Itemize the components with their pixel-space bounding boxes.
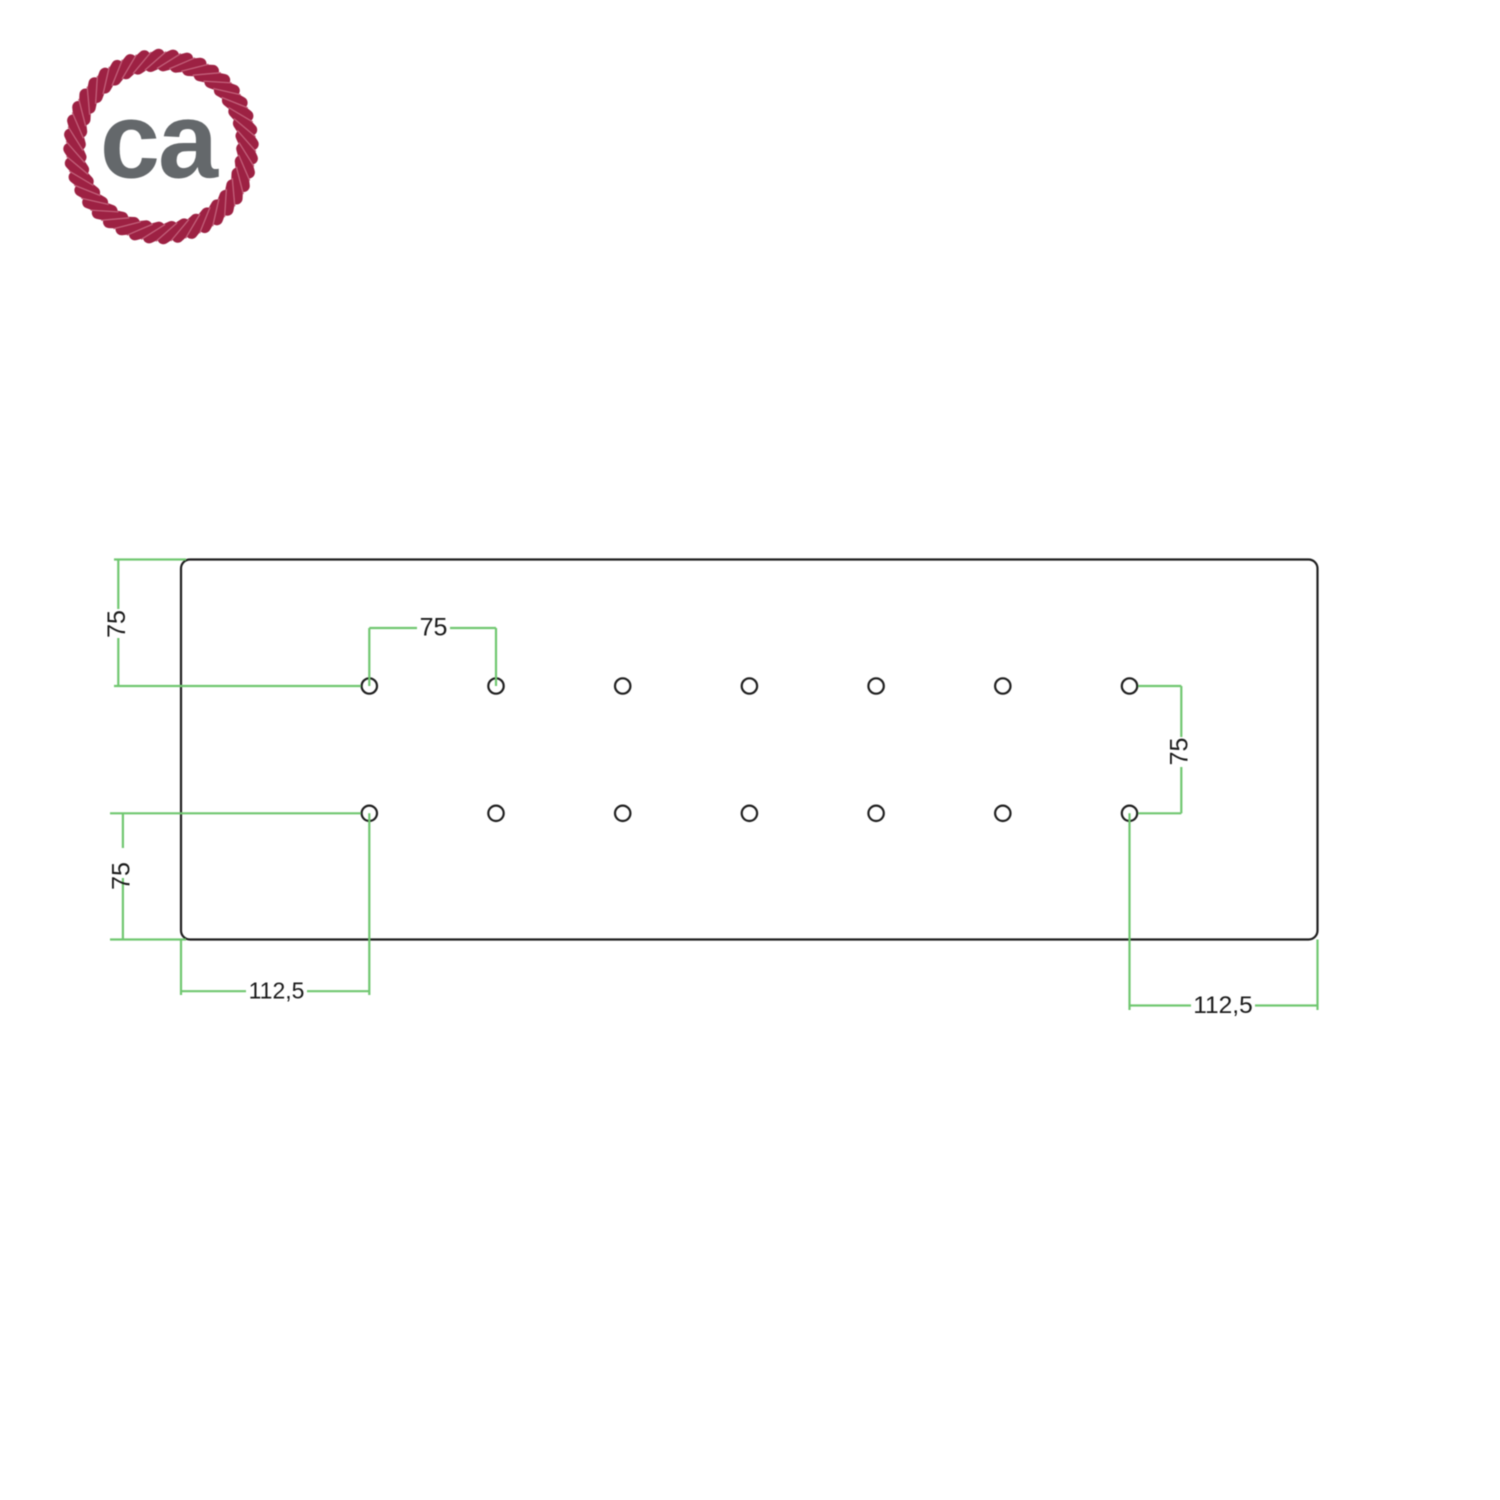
svg-text:75: 75 (420, 614, 448, 642)
svg-text:112,5: 112,5 (1193, 992, 1253, 1019)
svg-text:75: 75 (108, 862, 136, 890)
svg-text:ca: ca (100, 80, 219, 201)
svg-text:75: 75 (1166, 738, 1194, 766)
svg-text:112,5: 112,5 (249, 978, 305, 1004)
svg-text:75: 75 (103, 610, 131, 638)
